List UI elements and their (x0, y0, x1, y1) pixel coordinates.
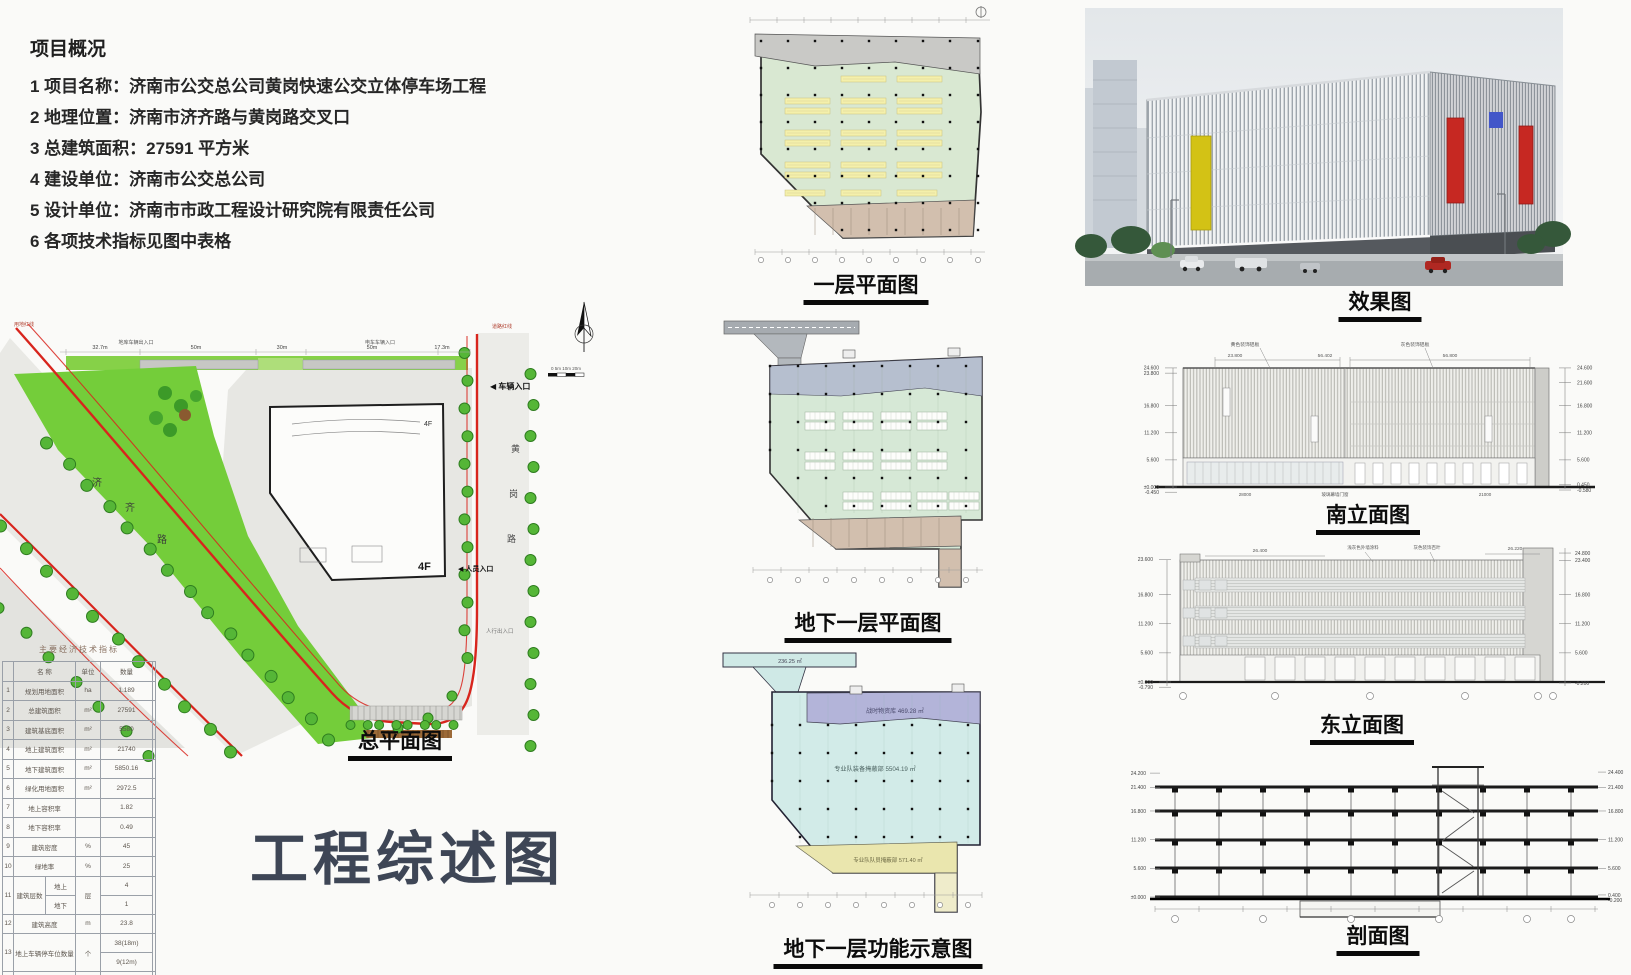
beam (1480, 789, 1486, 793)
td-subvals: 41 (101, 877, 153, 914)
td-unit: m² (76, 779, 101, 798)
tree (525, 369, 536, 380)
column-dot (825, 393, 827, 395)
site-green-strip-hatch (258, 358, 303, 370)
column-dot (868, 67, 870, 69)
column-dot (760, 67, 762, 69)
column-dot (814, 94, 816, 96)
floor-slab (1155, 867, 1598, 870)
plan2-title: 地下一层平面图 (785, 612, 952, 643)
column-dot (895, 121, 897, 123)
beam (1392, 870, 1398, 874)
south-elevation-drawing: 23.800 56.402 56.800 黄色装饰铝板 灰色装饰铝板 玻璃幕墙门… (1095, 330, 1631, 502)
plan3-purple-band (807, 692, 980, 724)
column-dot (771, 780, 773, 782)
tree (159, 678, 171, 690)
render-blue-sign (1489, 112, 1503, 128)
column-dot (841, 67, 843, 69)
beam (1392, 789, 1398, 793)
axis-bubble (812, 257, 817, 262)
beam (1436, 842, 1442, 846)
axis-bubble (935, 577, 940, 582)
elevation-mark: 16.800 (1608, 809, 1624, 815)
door (1365, 657, 1385, 680)
td-qty: 27591 (101, 701, 153, 720)
td-unit: % (76, 838, 101, 857)
table-cell: 12 (3, 915, 14, 934)
render-red-panel-2 (1519, 126, 1533, 204)
column-dot (965, 365, 967, 367)
render-title: 效果图 (1339, 291, 1422, 322)
plan2-top-band (770, 357, 982, 396)
column-dot (760, 94, 762, 96)
column-dot (895, 229, 897, 231)
tree (459, 458, 470, 469)
site-dim-5: 17.3m (434, 345, 450, 351)
column-dot (787, 175, 789, 177)
render-red-panel-1 (1447, 118, 1464, 203)
beam (1260, 789, 1266, 793)
column-dot (922, 148, 924, 150)
east-window-grid (1183, 580, 1227, 646)
south-top-dim-3: 56.800 (1443, 353, 1458, 359)
overview-items: 1 项目名称：济南市公交总公司黄岗快速公交立体停车场工程2 地理位置：济南市济齐… (30, 71, 630, 257)
south-shaft-1 (1223, 388, 1230, 416)
column-dot (977, 202, 979, 204)
column-dot (911, 808, 913, 810)
table-cell: 6 (3, 779, 14, 798)
column-dot (769, 365, 771, 367)
site-road-east-surface (477, 333, 529, 735)
south-title-text: 南立面图 (1326, 504, 1410, 527)
door (1463, 463, 1473, 484)
table-row: 5地下建筑面积m²5850.16 (3, 760, 155, 780)
column-dot (841, 175, 843, 177)
site-vehicle-entrance-label: ◀ 车辆入口 (490, 381, 530, 391)
door (1445, 463, 1455, 484)
plan2-ramp-funnel (754, 334, 807, 358)
column-dot (868, 175, 870, 177)
tree (525, 617, 536, 628)
elevation-mark: -0.200 (1608, 898, 1622, 904)
column-dot (939, 836, 941, 838)
beam (1172, 813, 1178, 817)
tree (67, 588, 79, 600)
beam (1216, 842, 1222, 846)
table-cell: 13 (3, 934, 14, 971)
beam (1524, 789, 1530, 793)
site-plan-title-text: 总平面图 (358, 730, 442, 753)
elevation-mark: 21.400 (1131, 785, 1147, 791)
plan3-title-text: 地下一层功能示意图 (784, 938, 973, 961)
plan3-title: 地下一层功能示意图 (774, 938, 983, 969)
window (1199, 580, 1211, 590)
east-parapet-left (1180, 554, 1200, 562)
column-dot (967, 808, 969, 810)
beam (1524, 842, 1530, 846)
th-unit: 单位 (76, 662, 101, 681)
axis-bubble (785, 257, 790, 262)
tree (346, 721, 355, 730)
td-name: 建筑层数 (14, 877, 46, 914)
td-qty: 23.8 (101, 915, 153, 934)
td-qty: 45 (101, 838, 153, 857)
td-subkey: 地上 (46, 877, 75, 895)
column-dot (868, 229, 870, 231)
column-dot (911, 724, 913, 726)
door (1335, 657, 1355, 680)
axis-bubble (965, 902, 970, 907)
tree (462, 486, 473, 497)
beam (1304, 789, 1310, 793)
td-name: 建筑密度 (14, 838, 76, 857)
column-dot (965, 449, 967, 451)
td-unit: m² (76, 721, 101, 740)
column-dot (760, 121, 762, 123)
tree (282, 692, 294, 704)
column-dot (949, 202, 951, 204)
tree (121, 522, 133, 534)
window (1199, 636, 1211, 646)
beam (1260, 842, 1266, 846)
td-subkey: 地下 (46, 895, 75, 914)
column-dot (922, 229, 924, 231)
door (1373, 463, 1383, 484)
beam (1172, 842, 1178, 846)
table-cell: 9 (3, 838, 14, 857)
tree (64, 458, 76, 470)
elevation-mark: -0.450 (1145, 490, 1159, 496)
tree (363, 721, 372, 730)
column-dot (881, 477, 883, 479)
column-dot (922, 67, 924, 69)
tree (525, 431, 536, 442)
tree (225, 746, 237, 758)
td-qty: 38(18m)9(12m) (101, 934, 153, 971)
column-dot (853, 365, 855, 367)
door (1485, 657, 1505, 680)
elevation-mark: 5.600 (1146, 458, 1159, 464)
td-subkeys: 地上地下 (46, 877, 76, 914)
axis-bubble (881, 902, 886, 907)
tree (202, 607, 214, 619)
column-dot (797, 365, 799, 367)
window (1215, 636, 1227, 646)
door (1499, 463, 1509, 484)
td-name: 总建筑面积 (14, 701, 76, 720)
axis-bubble (1462, 693, 1469, 700)
td-qty: 2972.5 (101, 779, 153, 798)
table-row: 10绿地率%25 (3, 857, 155, 877)
tree (528, 586, 539, 597)
table-cell: 11 (3, 877, 14, 914)
column-dot (883, 780, 885, 782)
column-dot (769, 421, 771, 423)
axis-bubble (767, 577, 772, 582)
column-dot (977, 67, 979, 69)
elevation-mark: -0.200 (1575, 681, 1589, 687)
tree (525, 679, 536, 690)
column-dot (937, 421, 939, 423)
td-qty: 5850.16 (101, 760, 153, 779)
jiqi-char-3: 路 (157, 533, 167, 546)
plan3-cyan-label: 专业队装备掩蔽部 5504.19 ㎡ (834, 765, 916, 773)
table-cell: 2 (3, 701, 14, 720)
door (1275, 657, 1295, 680)
axis-bubble (975, 257, 980, 262)
tree (432, 721, 441, 730)
south-top-brackets (1215, 348, 1530, 368)
beam (1436, 789, 1442, 793)
td-unit: m² (76, 760, 101, 779)
column-dot (977, 121, 979, 123)
axis-bubble (1535, 693, 1542, 700)
tree (462, 375, 473, 386)
site-redline-right-label: 道路红线 (492, 323, 512, 330)
axis-bubble (1260, 916, 1267, 923)
site-dim-1: 32.7m (92, 345, 108, 351)
column-dot (853, 421, 855, 423)
column-dot (787, 67, 789, 69)
window (1183, 608, 1195, 618)
tree (459, 625, 470, 636)
beam (1568, 842, 1574, 846)
site-dim-2: 50m (191, 345, 202, 351)
elevation-mark: 11.200 (1131, 837, 1146, 843)
plan1-title-text: 一层平面图 (814, 274, 919, 297)
plan1-title: 一层平面图 (804, 274, 929, 305)
axis-bubble (1524, 916, 1531, 923)
column-dot (965, 505, 967, 507)
td-qty: 21740 (101, 740, 153, 759)
column-dot (855, 780, 857, 782)
column-dot (855, 752, 857, 754)
column-dot (825, 477, 827, 479)
tree (403, 721, 412, 730)
column-dot (787, 121, 789, 123)
td-qty-line: 9(12m) (101, 952, 152, 971)
column-dot (909, 477, 911, 479)
td-name: 地下建筑面积 (14, 760, 76, 779)
indicator-table: 主要经济技术指标 名 称单位数量1规划用地面积ha1.1892总建筑面积m²27… (2, 644, 156, 975)
plan1-north-icon (976, 6, 986, 18)
site-garage-out-label: 地库车辆出入口 (118, 339, 153, 346)
table-cell: 10 (3, 857, 14, 876)
tree (447, 691, 457, 701)
td-name: 地下容积率 (14, 818, 76, 837)
column-dot (881, 393, 883, 395)
axis-bubble (1180, 693, 1187, 700)
south-bottom-label: 玻璃幕墙门窗 (1322, 491, 1349, 498)
column-dot (841, 40, 843, 42)
table-header-row: 名 称单位数量 (3, 662, 155, 682)
td-name: 地上车辆停车位数量 (14, 934, 76, 971)
east-elevation-drawing: 26.400 26.220 浅灰色外墙涂料 灰色装饰百叶 23.60016.80… (1095, 540, 1631, 706)
column-dot (911, 780, 913, 782)
east-annotation-2: 灰色装饰百叶 (1414, 544, 1441, 551)
plan2-vent-1 (843, 350, 855, 358)
tree (525, 555, 536, 566)
elevation-mark: 5.600 (1133, 866, 1146, 872)
column-dot (881, 449, 883, 451)
axis-bubble (963, 577, 968, 582)
east-annotation-1: 浅灰色外墙涂料 (1347, 544, 1379, 551)
plan2-stair-protrusion (939, 549, 961, 587)
overview-item-4: 4 建设单位：济南市公交总公司 (30, 164, 630, 195)
elevation-mark: 5.600 (1608, 866, 1621, 872)
column-dot (967, 836, 969, 838)
window (1215, 608, 1227, 618)
overview-title: 项目概况 (30, 34, 630, 61)
column-dot (895, 148, 897, 150)
axis-bubble (909, 902, 914, 907)
jiqi-char-2: 齐 (125, 501, 135, 514)
elevation-mark: 21.600 (1577, 380, 1593, 386)
elevation-mark: 11.200 (1575, 622, 1590, 628)
column-dot (799, 752, 801, 754)
beam (1216, 870, 1222, 874)
column-dot (939, 808, 941, 810)
column-dot (827, 724, 829, 726)
tree (528, 710, 539, 721)
plan1-tan-band (807, 200, 975, 238)
beam (1568, 789, 1574, 793)
column-dot (799, 780, 801, 782)
elevation-mark: 16.800 (1131, 809, 1147, 815)
column-dot (922, 94, 924, 96)
td-name: 绿地率 (14, 857, 76, 876)
render-street (1085, 260, 1563, 286)
east-top-dim-2: 26.220 (1508, 546, 1523, 552)
floor-slab (1155, 810, 1598, 813)
column-dot (797, 477, 799, 479)
column-dot (977, 40, 979, 42)
door (1391, 463, 1401, 484)
column-dot (939, 752, 941, 754)
axis-bubble (1367, 693, 1374, 700)
tree (41, 437, 53, 449)
site-ped-entrance-label: 人行出入口 (486, 627, 514, 635)
overview-item-6: 6 各项技术指标见图中表格 (30, 226, 630, 257)
tree (528, 400, 539, 411)
column-dot (868, 202, 870, 204)
column-dot (967, 752, 969, 754)
window (1199, 608, 1211, 618)
tree (449, 721, 458, 730)
column-dot (814, 148, 816, 150)
th-name: 名 称 (14, 662, 76, 681)
site-parking-bar-1 (140, 360, 258, 369)
south-annotation-2: 灰色装饰铝板 (1401, 341, 1430, 348)
door (1355, 463, 1365, 484)
plan3-vent-2 (952, 684, 964, 692)
column-dot (909, 421, 911, 423)
plan2-title-text: 地下一层平面图 (795, 612, 942, 635)
column-dot (841, 121, 843, 123)
elevation-mark: 23.600 (1138, 557, 1154, 563)
beam (1304, 813, 1310, 817)
axis-bubble (853, 902, 858, 907)
south-base-glass (1187, 462, 1343, 484)
column-dot (787, 148, 789, 150)
column-dot (769, 393, 771, 395)
column-dot (881, 365, 883, 367)
elevation-mark: 23.800 (1144, 371, 1160, 377)
td-qty-line: 38(18m) (101, 934, 152, 952)
axis-bubble (1550, 693, 1557, 700)
tree (225, 628, 237, 640)
section-title: 剖面图 (1337, 925, 1420, 956)
table-row: 3建筑基底面积m²5580 (3, 721, 155, 741)
render-title-text: 效果图 (1349, 291, 1412, 314)
elevation-mark: 5.600 (1575, 651, 1588, 657)
th-qty: 数量 (101, 662, 153, 681)
door (1517, 463, 1527, 484)
beam (1480, 842, 1486, 846)
column-dot (949, 94, 951, 96)
column-dot (827, 752, 829, 754)
door (1481, 463, 1491, 484)
beam (1436, 813, 1442, 817)
column-dot (965, 421, 967, 423)
table-cell: 5 (3, 760, 14, 779)
column-dot (949, 229, 951, 231)
elevation-mark: 11.200 (1577, 431, 1592, 437)
south-stair-tower (1535, 368, 1549, 487)
axis-bubble (851, 577, 856, 582)
elevation-mark: 16.800 (1577, 403, 1593, 409)
tree (462, 431, 473, 442)
column-dot (895, 202, 897, 204)
plan2-drawing (693, 308, 1000, 603)
overview-item-5: 5 设计单位：济南市市政工程设计研究院有限责任公司 (30, 195, 630, 226)
td-name: 地上容积率 (14, 799, 76, 818)
tree (242, 649, 254, 661)
beam (1524, 870, 1530, 874)
beam (1392, 813, 1398, 817)
render-building-front (1147, 72, 1430, 248)
column-dot (799, 808, 801, 810)
elevation-mark: 21.400 (1608, 785, 1624, 791)
td-name: 地上建筑面积 (14, 740, 76, 759)
axis-bubble (1436, 916, 1443, 923)
table-row: 4地上建筑面积m²21740 (3, 740, 155, 760)
table-row: 12建筑高度m23.8 (3, 915, 155, 935)
column-dot (949, 40, 951, 42)
elevation-mark: 24.400 (1608, 770, 1624, 776)
column-dot (853, 477, 855, 479)
site-garage-in-label: 电车车辆入口 (365, 339, 395, 346)
site-plan-title: 总平面图 (348, 730, 452, 761)
beam (1216, 813, 1222, 817)
td-subval: 4 (101, 877, 152, 895)
column-dot (909, 449, 911, 451)
column-dot (922, 175, 924, 177)
tree (459, 403, 470, 414)
column-dot (799, 724, 801, 726)
east-louver-band-2 (1195, 606, 1525, 620)
elevation-mark: 11.200 (1608, 837, 1623, 843)
site-building-4f-small: 4F (424, 421, 432, 428)
axis-bubble (839, 257, 844, 262)
beam (1348, 813, 1354, 817)
column-dot (883, 808, 885, 810)
table-cell: 3 (3, 721, 14, 740)
plan3-purple-label: 战时物资库 469.28 ㎡ (866, 707, 924, 715)
elevation-mark: 5.600 (1577, 458, 1590, 464)
column-dot (855, 724, 857, 726)
td-qty: 25 (101, 857, 153, 876)
